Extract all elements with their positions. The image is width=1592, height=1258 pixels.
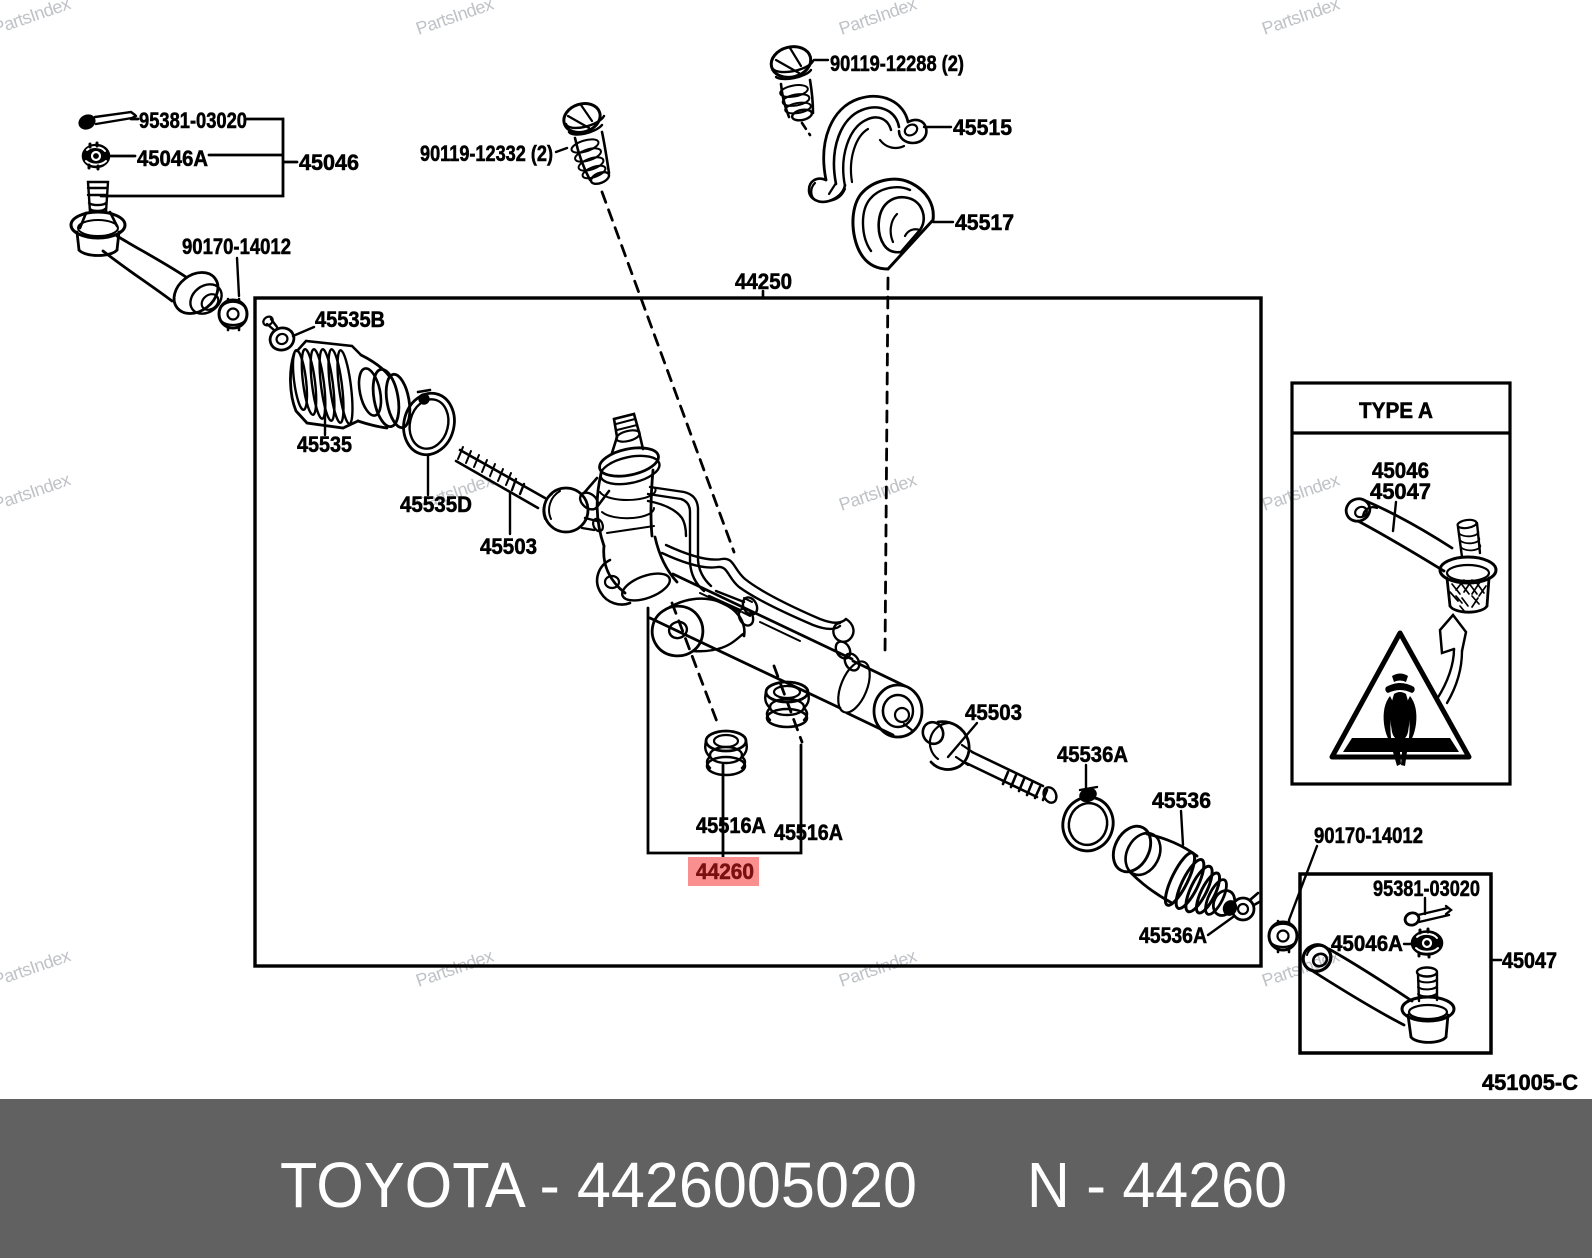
svg-text:45536A: 45536A — [1057, 742, 1128, 767]
svg-text:45535B: 45535B — [315, 307, 385, 332]
svg-text:44260: 44260 — [696, 859, 754, 884]
svg-text:45047: 45047 — [1502, 948, 1557, 973]
svg-text:90119-12332 (2): 90119-12332 (2) — [420, 141, 553, 166]
svg-text:45503: 45503 — [965, 700, 1022, 725]
svg-text:45517: 45517 — [955, 210, 1014, 235]
svg-text:45536A: 45536A — [1139, 923, 1207, 948]
svg-text:45536: 45536 — [1152, 788, 1211, 813]
svg-text:45047: 45047 — [1370, 479, 1431, 504]
svg-text:TOYOTA - 4426005020: TOYOTA - 4426005020 — [280, 1149, 917, 1221]
svg-text:45046: 45046 — [299, 150, 359, 175]
svg-text:45516A: 45516A — [696, 813, 766, 838]
svg-text:451005-C: 451005-C — [1482, 1070, 1578, 1095]
svg-text:45516A: 45516A — [774, 820, 843, 845]
svg-text:45535: 45535 — [297, 432, 352, 457]
svg-text:45515: 45515 — [953, 115, 1012, 140]
svg-text:45046A: 45046A — [137, 146, 208, 171]
svg-text:45046A: 45046A — [1331, 931, 1403, 956]
svg-text:TYPE A: TYPE A — [1359, 398, 1433, 423]
svg-text:95381-03020: 95381-03020 — [139, 108, 247, 133]
svg-text:45535D: 45535D — [400, 492, 472, 517]
svg-text:44250: 44250 — [735, 269, 792, 294]
svg-text:90119-12288 (2): 90119-12288 (2) — [830, 51, 964, 76]
svg-text:45503: 45503 — [480, 534, 537, 559]
svg-text:95381-03020: 95381-03020 — [1373, 876, 1480, 901]
svg-text:90170-14012: 90170-14012 — [1314, 823, 1423, 848]
svg-text:90170-14012: 90170-14012 — [182, 234, 291, 259]
svg-text:N - 44260: N - 44260 — [1027, 1149, 1287, 1221]
